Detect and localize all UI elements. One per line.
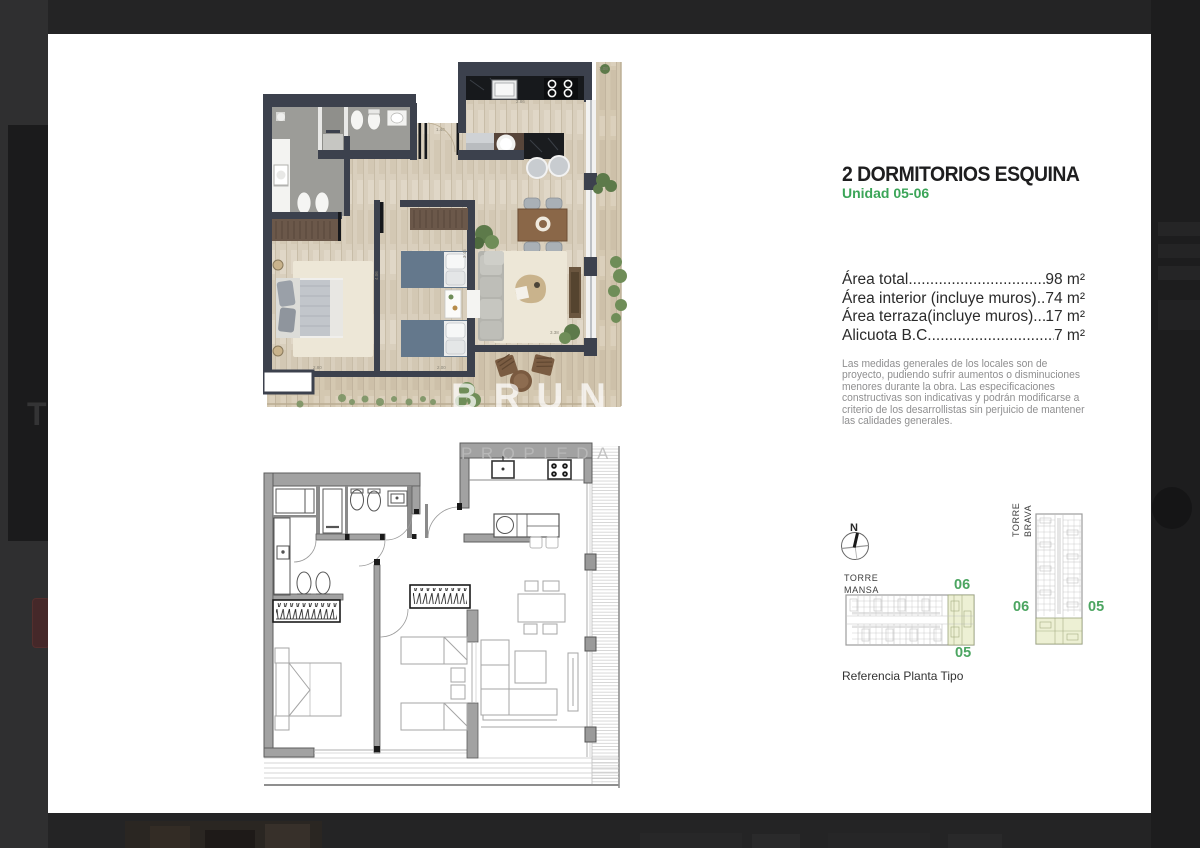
- svg-text:3.38: 3.38: [550, 330, 559, 335]
- svg-text:3.45: 3.45: [462, 249, 467, 258]
- svg-text:PROPIEDA: PROPIEDA: [461, 444, 617, 463]
- svg-text:2.00: 2.00: [437, 365, 446, 370]
- svg-text:1.08: 1.08: [599, 66, 608, 71]
- svg-text:4.06: 4.06: [374, 271, 379, 280]
- svg-text:2.80: 2.80: [313, 365, 322, 370]
- svg-text:2.86: 2.86: [516, 99, 525, 104]
- svg-text:BRUN: BRUN: [451, 376, 622, 410]
